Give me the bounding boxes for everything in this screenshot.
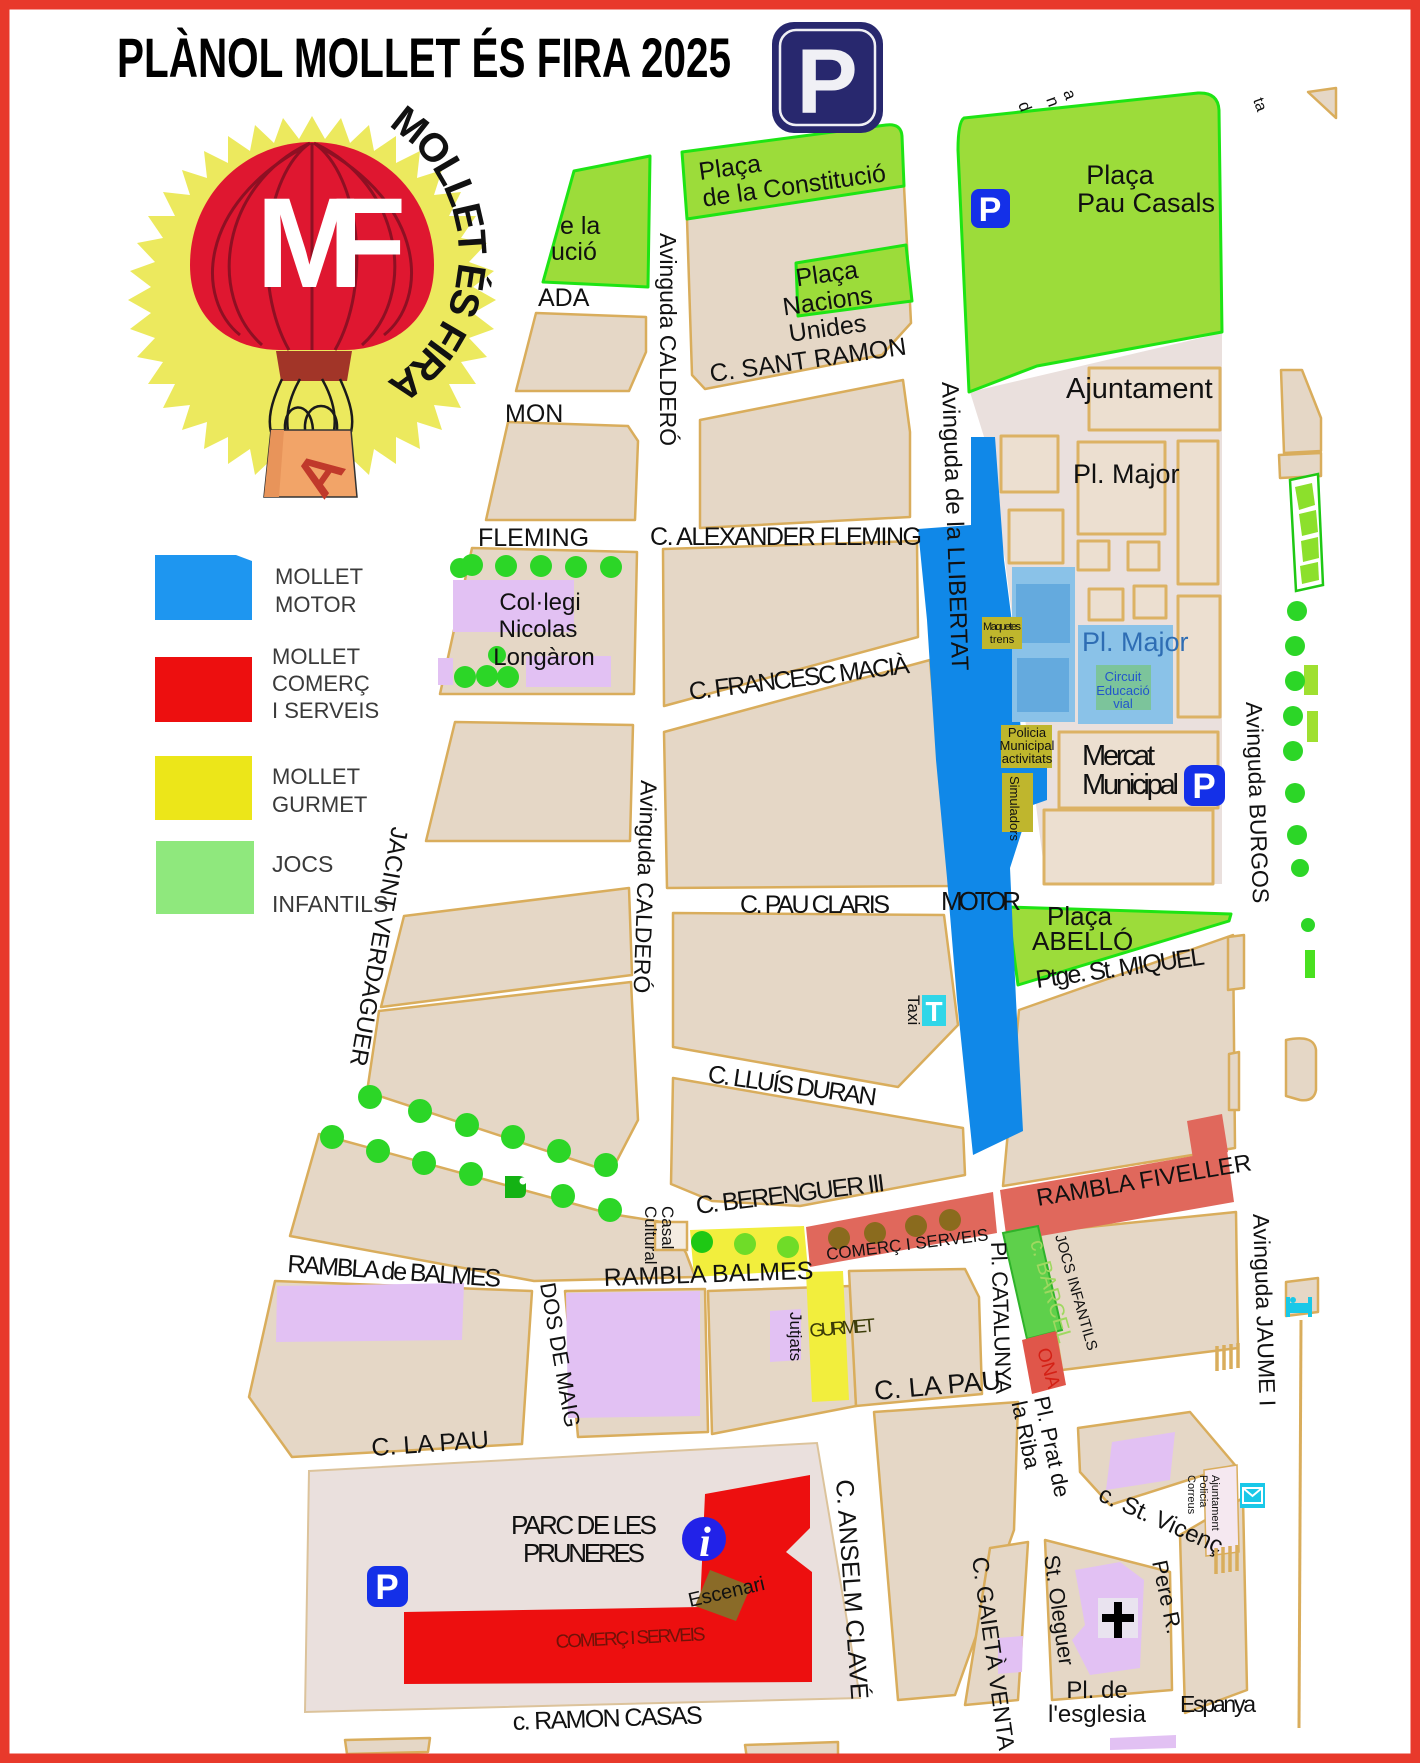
svg-text:Plaça: Plaça	[1086, 160, 1155, 190]
svg-text:P: P	[375, 1568, 398, 1607]
svg-text:Taxi: Taxi	[904, 995, 923, 1025]
svg-text:MOTOR: MOTOR	[275, 592, 356, 617]
svg-text:T: T	[925, 996, 942, 1027]
svg-text:C. PAU CLARIS: C. PAU CLARIS	[740, 891, 890, 919]
svg-text:i: i	[699, 1520, 711, 1566]
svg-text:P: P	[1192, 767, 1215, 806]
svg-text:GURMET: GURMET	[272, 792, 367, 817]
svg-text:I SERVEIS: I SERVEIS	[272, 698, 379, 723]
svg-text:COMERÇ: COMERÇ	[272, 671, 370, 696]
svg-text:P: P	[979, 191, 1002, 229]
svg-text:MOLLET: MOLLET	[272, 764, 360, 789]
svg-text:Pl. Major: Pl. Major	[1073, 459, 1180, 489]
svg-text:Nicolas: Nicolas	[499, 616, 578, 643]
svg-text:P: P	[796, 31, 857, 133]
svg-text:Jutjats: Jutjats	[786, 1312, 805, 1361]
svg-text:INFANTILS: INFANTILS	[272, 891, 388, 917]
svg-text:PLÀNOL MOLLET ÉS FIRA 2025: PLÀNOL MOLLET ÉS FIRA 2025	[117, 26, 731, 89]
svg-text:MOLLET: MOLLET	[272, 644, 360, 669]
svg-text:JOCS: JOCS	[272, 851, 333, 877]
svg-text:F: F	[328, 172, 406, 315]
svg-text:ADA: ADA	[538, 284, 590, 312]
svg-text:vial: vial	[1113, 696, 1133, 711]
svg-text:Ajuntament: Ajuntament	[1066, 373, 1213, 405]
svg-text:Pl. de: Pl. de	[1066, 1677, 1127, 1704]
svg-text:Maquetes: Maquetes	[983, 621, 1022, 633]
svg-text:C. ALEXANDER FLEMING: C. ALEXANDER FLEMING	[650, 523, 922, 551]
svg-text:PRUNERES: PRUNERES	[523, 1538, 645, 1568]
svg-text:activitats: activitats	[1002, 751, 1053, 766]
svg-text:Cultural: Cultural	[641, 1206, 660, 1265]
svg-text:MON: MON	[505, 400, 563, 428]
svg-text:ució: ució	[551, 238, 597, 266]
svg-text:Mercat: Mercat	[1082, 740, 1155, 772]
svg-text:MOTOR: MOTOR	[941, 886, 1021, 916]
svg-text:Correus: Correus	[1185, 1475, 1197, 1515]
svg-text:Pl. Major: Pl. Major	[1082, 627, 1189, 657]
svg-text:l'esglesia: l'esglesia	[1048, 1701, 1147, 1728]
svg-text:MOLLET: MOLLET	[275, 564, 363, 589]
svg-text:ABELLÓ: ABELLÓ	[1032, 926, 1133, 956]
svg-text:Municipal: Municipal	[1082, 769, 1179, 801]
svg-text:Simuladors: Simuladors	[1007, 776, 1022, 842]
svg-text:Col·legi: Col·legi	[499, 589, 580, 616]
svg-text:Espanya: Espanya	[1180, 1691, 1256, 1717]
svg-text:Avinguda CALDERÓ: Avinguda CALDERÓ	[655, 233, 681, 446]
svg-text:Policia: Policia	[1197, 1475, 1209, 1508]
svg-text:PARC DE LES: PARC DE LES	[511, 1510, 657, 1540]
svg-text:trens: trens	[990, 634, 1015, 646]
svg-text:Longàron: Longàron	[493, 644, 594, 671]
svg-text:Ajuntament: Ajuntament	[1209, 1475, 1221, 1531]
svg-text:Circuit: Circuit	[1105, 669, 1142, 684]
svg-text:Pau Casals: Pau Casals	[1077, 188, 1215, 218]
svg-text:FLEMING: FLEMING	[478, 524, 589, 552]
svg-text:e la: e la	[560, 212, 600, 240]
